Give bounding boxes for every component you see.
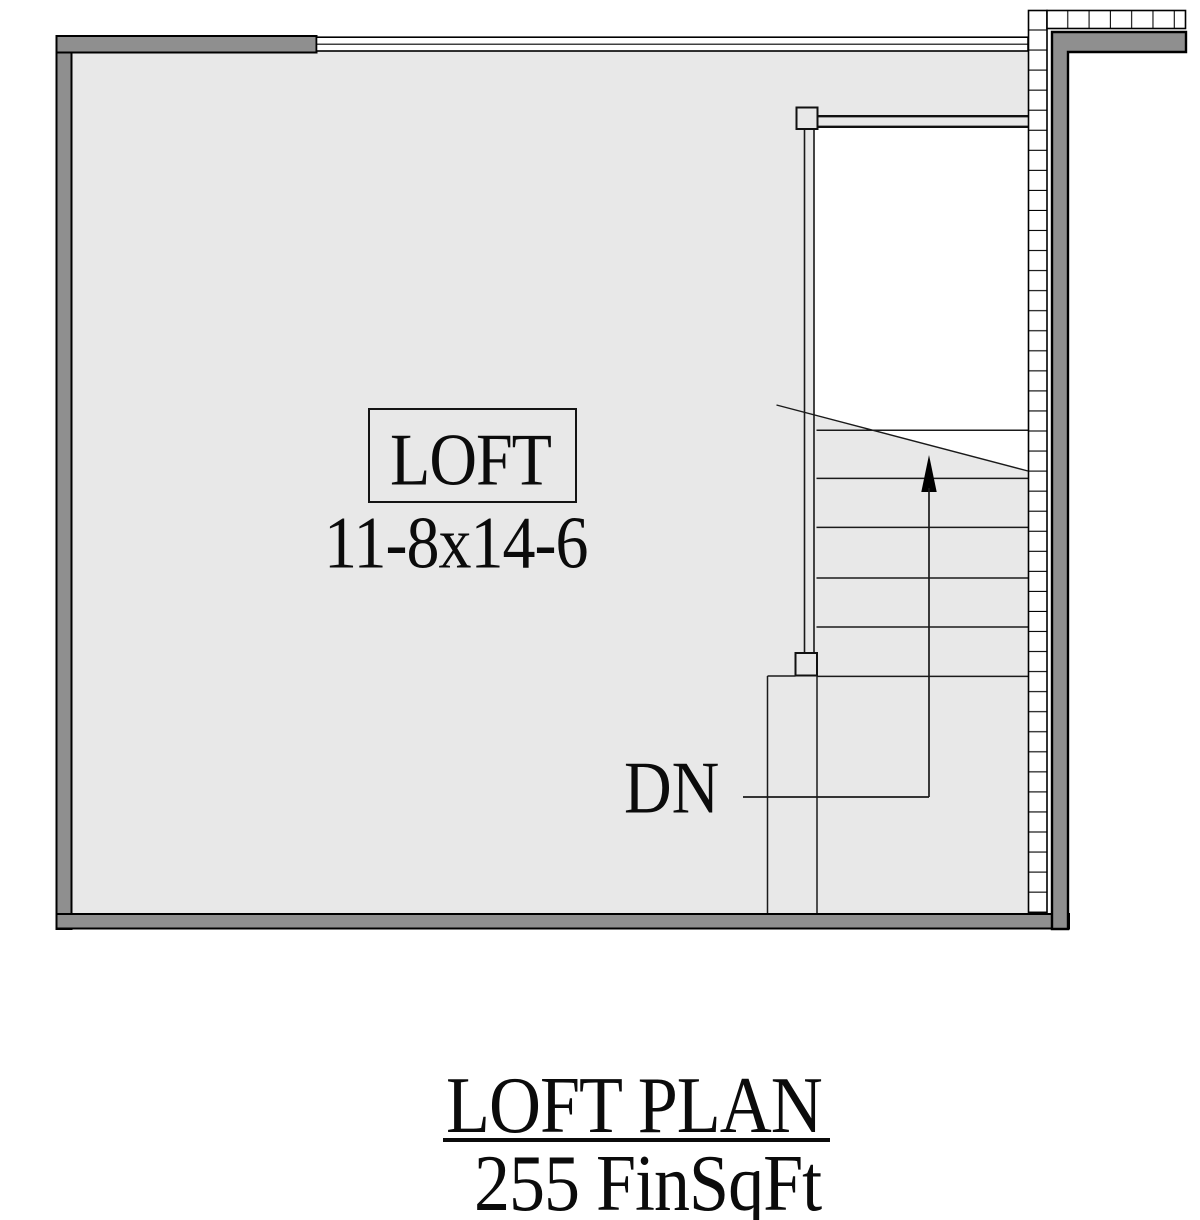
loft-floor-plan: LOFT 11-8x14-6 DN LOFT PLAN 255 FinSqFt — [0, 0, 1200, 1220]
bottom-wall — [57, 914, 1070, 929]
stairwell-opening — [815, 128, 1028, 471]
plan-title: LOFT PLAN — [446, 1065, 822, 1146]
top-wall — [57, 36, 317, 53]
left-wall — [57, 36, 72, 929]
right-wall-hatch — [1029, 11, 1048, 913]
railing-post-top — [797, 108, 818, 130]
window-top — [317, 37, 1029, 51]
room-dimensions-label: 11-8x14-6 — [324, 507, 588, 581]
room-label: LOFT — [390, 424, 551, 498]
stair-direction-label: DN — [624, 752, 719, 826]
right-wall — [1052, 32, 1186, 929]
top-right-wall-hatch — [1047, 11, 1186, 29]
railing-post-bottom — [796, 653, 818, 676]
floor-plan-drawing — [0, 0, 1200, 1220]
plan-area-label: 255 FinSqFt — [474, 1143, 821, 1220]
